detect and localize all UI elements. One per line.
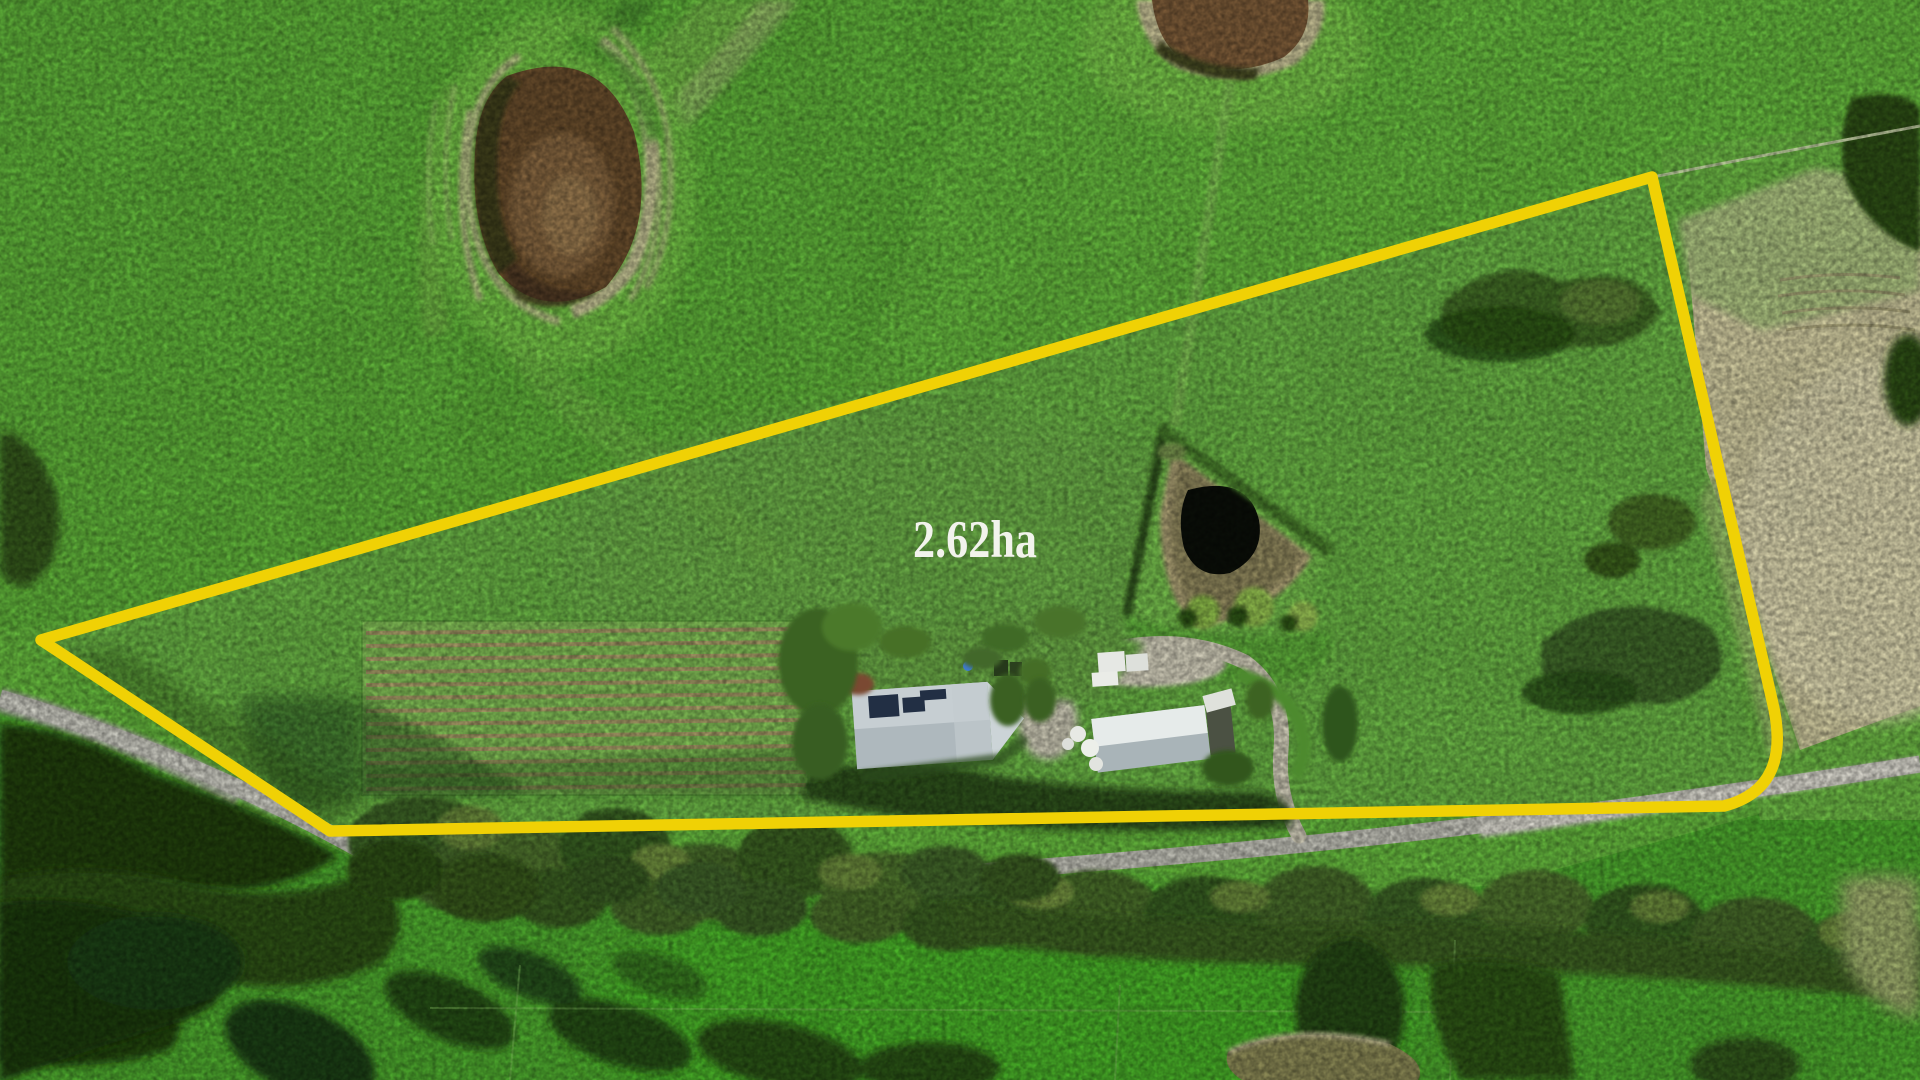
svg-text:2.62ha: 2.62ha [913, 511, 1037, 569]
